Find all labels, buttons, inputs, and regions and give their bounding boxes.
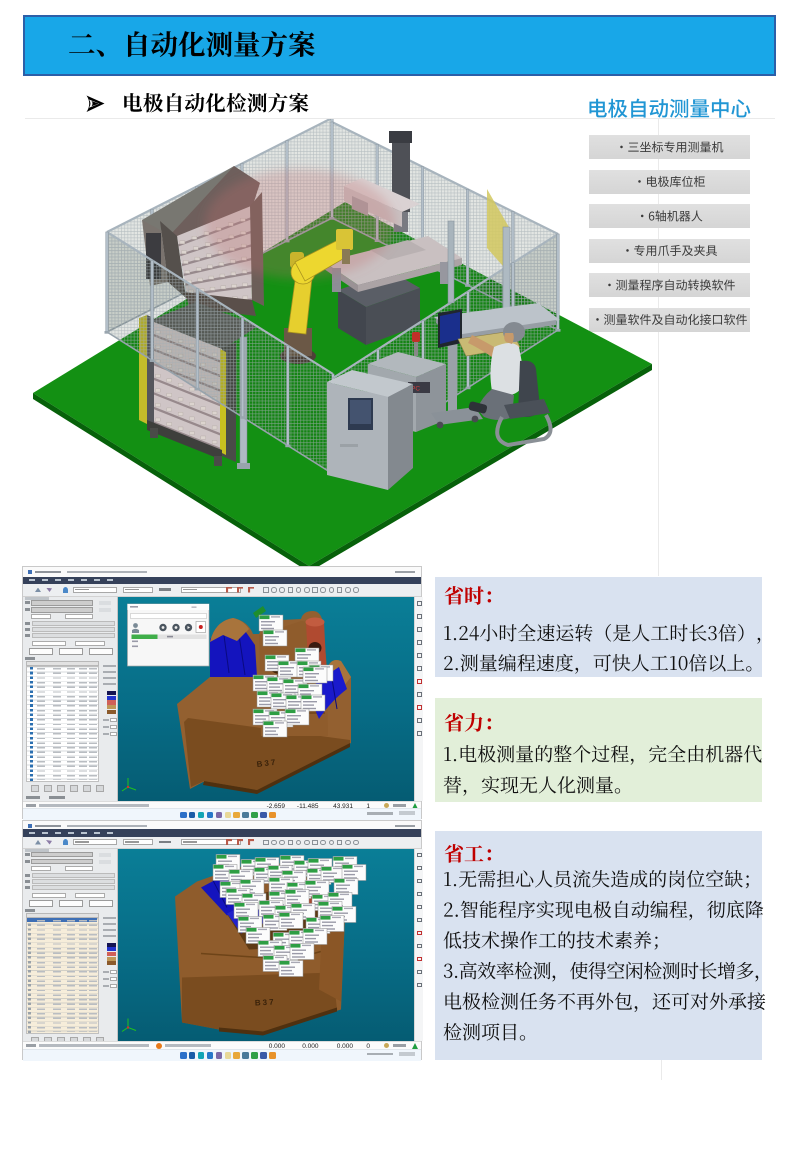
- svg-text:B37: B37: [255, 997, 276, 1007]
